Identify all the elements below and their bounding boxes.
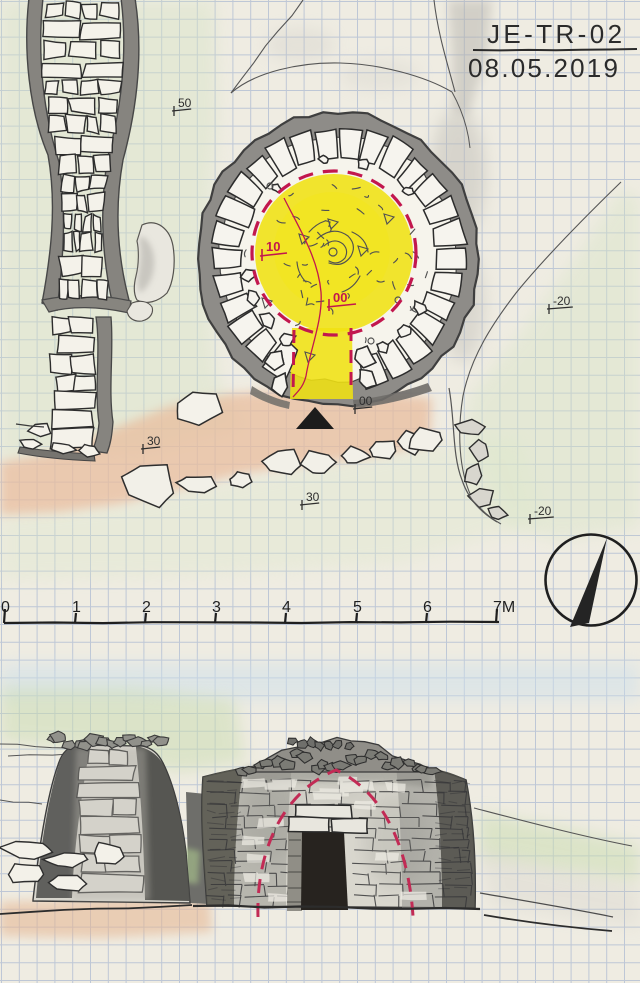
svg-text:0: 0 xyxy=(1,599,10,616)
svg-text:30: 30 xyxy=(306,490,320,504)
svg-text:2: 2 xyxy=(142,599,151,616)
svg-text:50: 50 xyxy=(178,96,192,110)
svg-text:JE-TR-02: JE-TR-02 xyxy=(487,19,625,49)
svg-text:6: 6 xyxy=(423,599,432,616)
svg-text:00: 00 xyxy=(359,394,373,408)
svg-text:08.05.2019: 08.05.2019 xyxy=(468,53,620,83)
svg-text:-20: -20 xyxy=(553,294,571,308)
svg-text:00: 00 xyxy=(333,290,347,305)
svg-text:3: 3 xyxy=(212,599,221,616)
svg-text:4: 4 xyxy=(282,599,291,616)
svg-text:7M: 7M xyxy=(493,599,515,616)
svg-text:30: 30 xyxy=(147,434,161,448)
svg-text:1: 1 xyxy=(72,599,81,616)
svg-text:-20: -20 xyxy=(534,504,552,518)
svg-text:10: 10 xyxy=(266,239,280,254)
svg-text:5: 5 xyxy=(353,599,362,616)
